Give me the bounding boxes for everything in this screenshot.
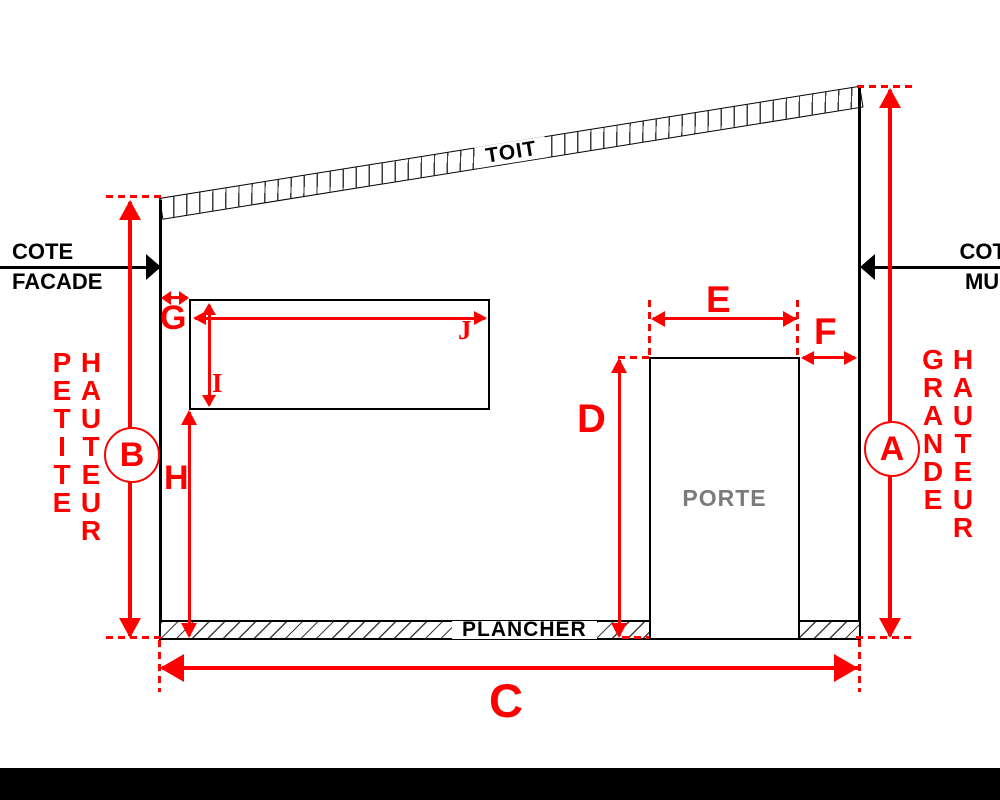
dim-h-arrowhead-down-icon xyxy=(181,623,197,638)
dim-e-arrowhead-left-icon xyxy=(651,311,665,327)
dim-e-label: E xyxy=(706,281,731,318)
right-wall-line xyxy=(858,88,861,622)
dim-a-line xyxy=(888,90,892,636)
dim-c-arrowhead-right-icon xyxy=(834,654,858,682)
ext-line-e-right xyxy=(796,300,799,357)
dim-e-arrowhead-right-icon xyxy=(783,311,797,327)
dim-d-arrowhead-down-icon xyxy=(611,623,627,638)
facade-dimension-diagram: TOIT PLANCHER PORTE COTE FACADE COTE MUR… xyxy=(0,0,1000,800)
dim-a-arrowhead-down-icon xyxy=(879,618,901,638)
dim-a-badge: A xyxy=(864,421,920,477)
ext-line-e-left xyxy=(648,300,651,357)
petite-hauteur-word-2: HAUTEUR xyxy=(74,349,108,545)
window xyxy=(189,299,490,410)
dim-f-label: F xyxy=(814,313,837,350)
dim-c-label: C xyxy=(489,677,523,724)
dim-b-line xyxy=(128,202,132,636)
dim-b-badge: B xyxy=(104,427,160,483)
mur-callout-label: COTE MUR xyxy=(948,241,1000,293)
dim-g-label: G xyxy=(160,301,186,335)
grande-hauteur-word-1: GRANDE xyxy=(916,346,950,514)
roof-band: TOIT xyxy=(159,86,864,220)
ext-line-top-left xyxy=(106,195,162,198)
roof-label: TOIT xyxy=(474,136,548,168)
dim-i-arrowhead-up-icon xyxy=(202,303,216,315)
facade-callout-label: COTE FACADE xyxy=(12,241,102,293)
dim-h-arrowhead-up-icon xyxy=(181,410,197,425)
dim-d-arrowhead-up-icon xyxy=(611,358,627,373)
mur-arrowhead-icon xyxy=(860,254,875,280)
floor-label: PLANCHER xyxy=(452,621,597,639)
grande-hauteur-word-2: HAUTEUR xyxy=(946,346,980,542)
dim-f-arrowhead-left-icon xyxy=(801,351,814,365)
dim-d-line xyxy=(618,360,621,636)
facade-arrowhead-icon xyxy=(146,254,161,280)
dim-a-arrowhead-up-icon xyxy=(879,88,901,108)
door-label: PORTE xyxy=(682,485,766,512)
dim-h-line xyxy=(188,412,191,636)
dim-b-arrowhead-up-icon xyxy=(119,200,141,220)
ext-line-c-right xyxy=(858,640,861,692)
door: PORTE xyxy=(649,357,800,640)
dim-d-label: D xyxy=(577,399,606,439)
dim-j-label: J xyxy=(458,317,472,344)
dim-c-line xyxy=(162,666,858,670)
dim-c-arrowhead-left-icon xyxy=(160,654,184,682)
dim-i-line xyxy=(208,305,211,405)
dim-j-line xyxy=(195,317,485,320)
dim-i-label: I xyxy=(212,370,223,397)
dim-b-arrowhead-down-icon xyxy=(119,618,141,638)
dim-f-arrowhead-right-icon xyxy=(844,351,857,365)
bottom-black-band xyxy=(0,768,1000,800)
dim-j-arrowhead-right-icon xyxy=(474,311,487,325)
dim-h-label: H xyxy=(164,461,189,495)
